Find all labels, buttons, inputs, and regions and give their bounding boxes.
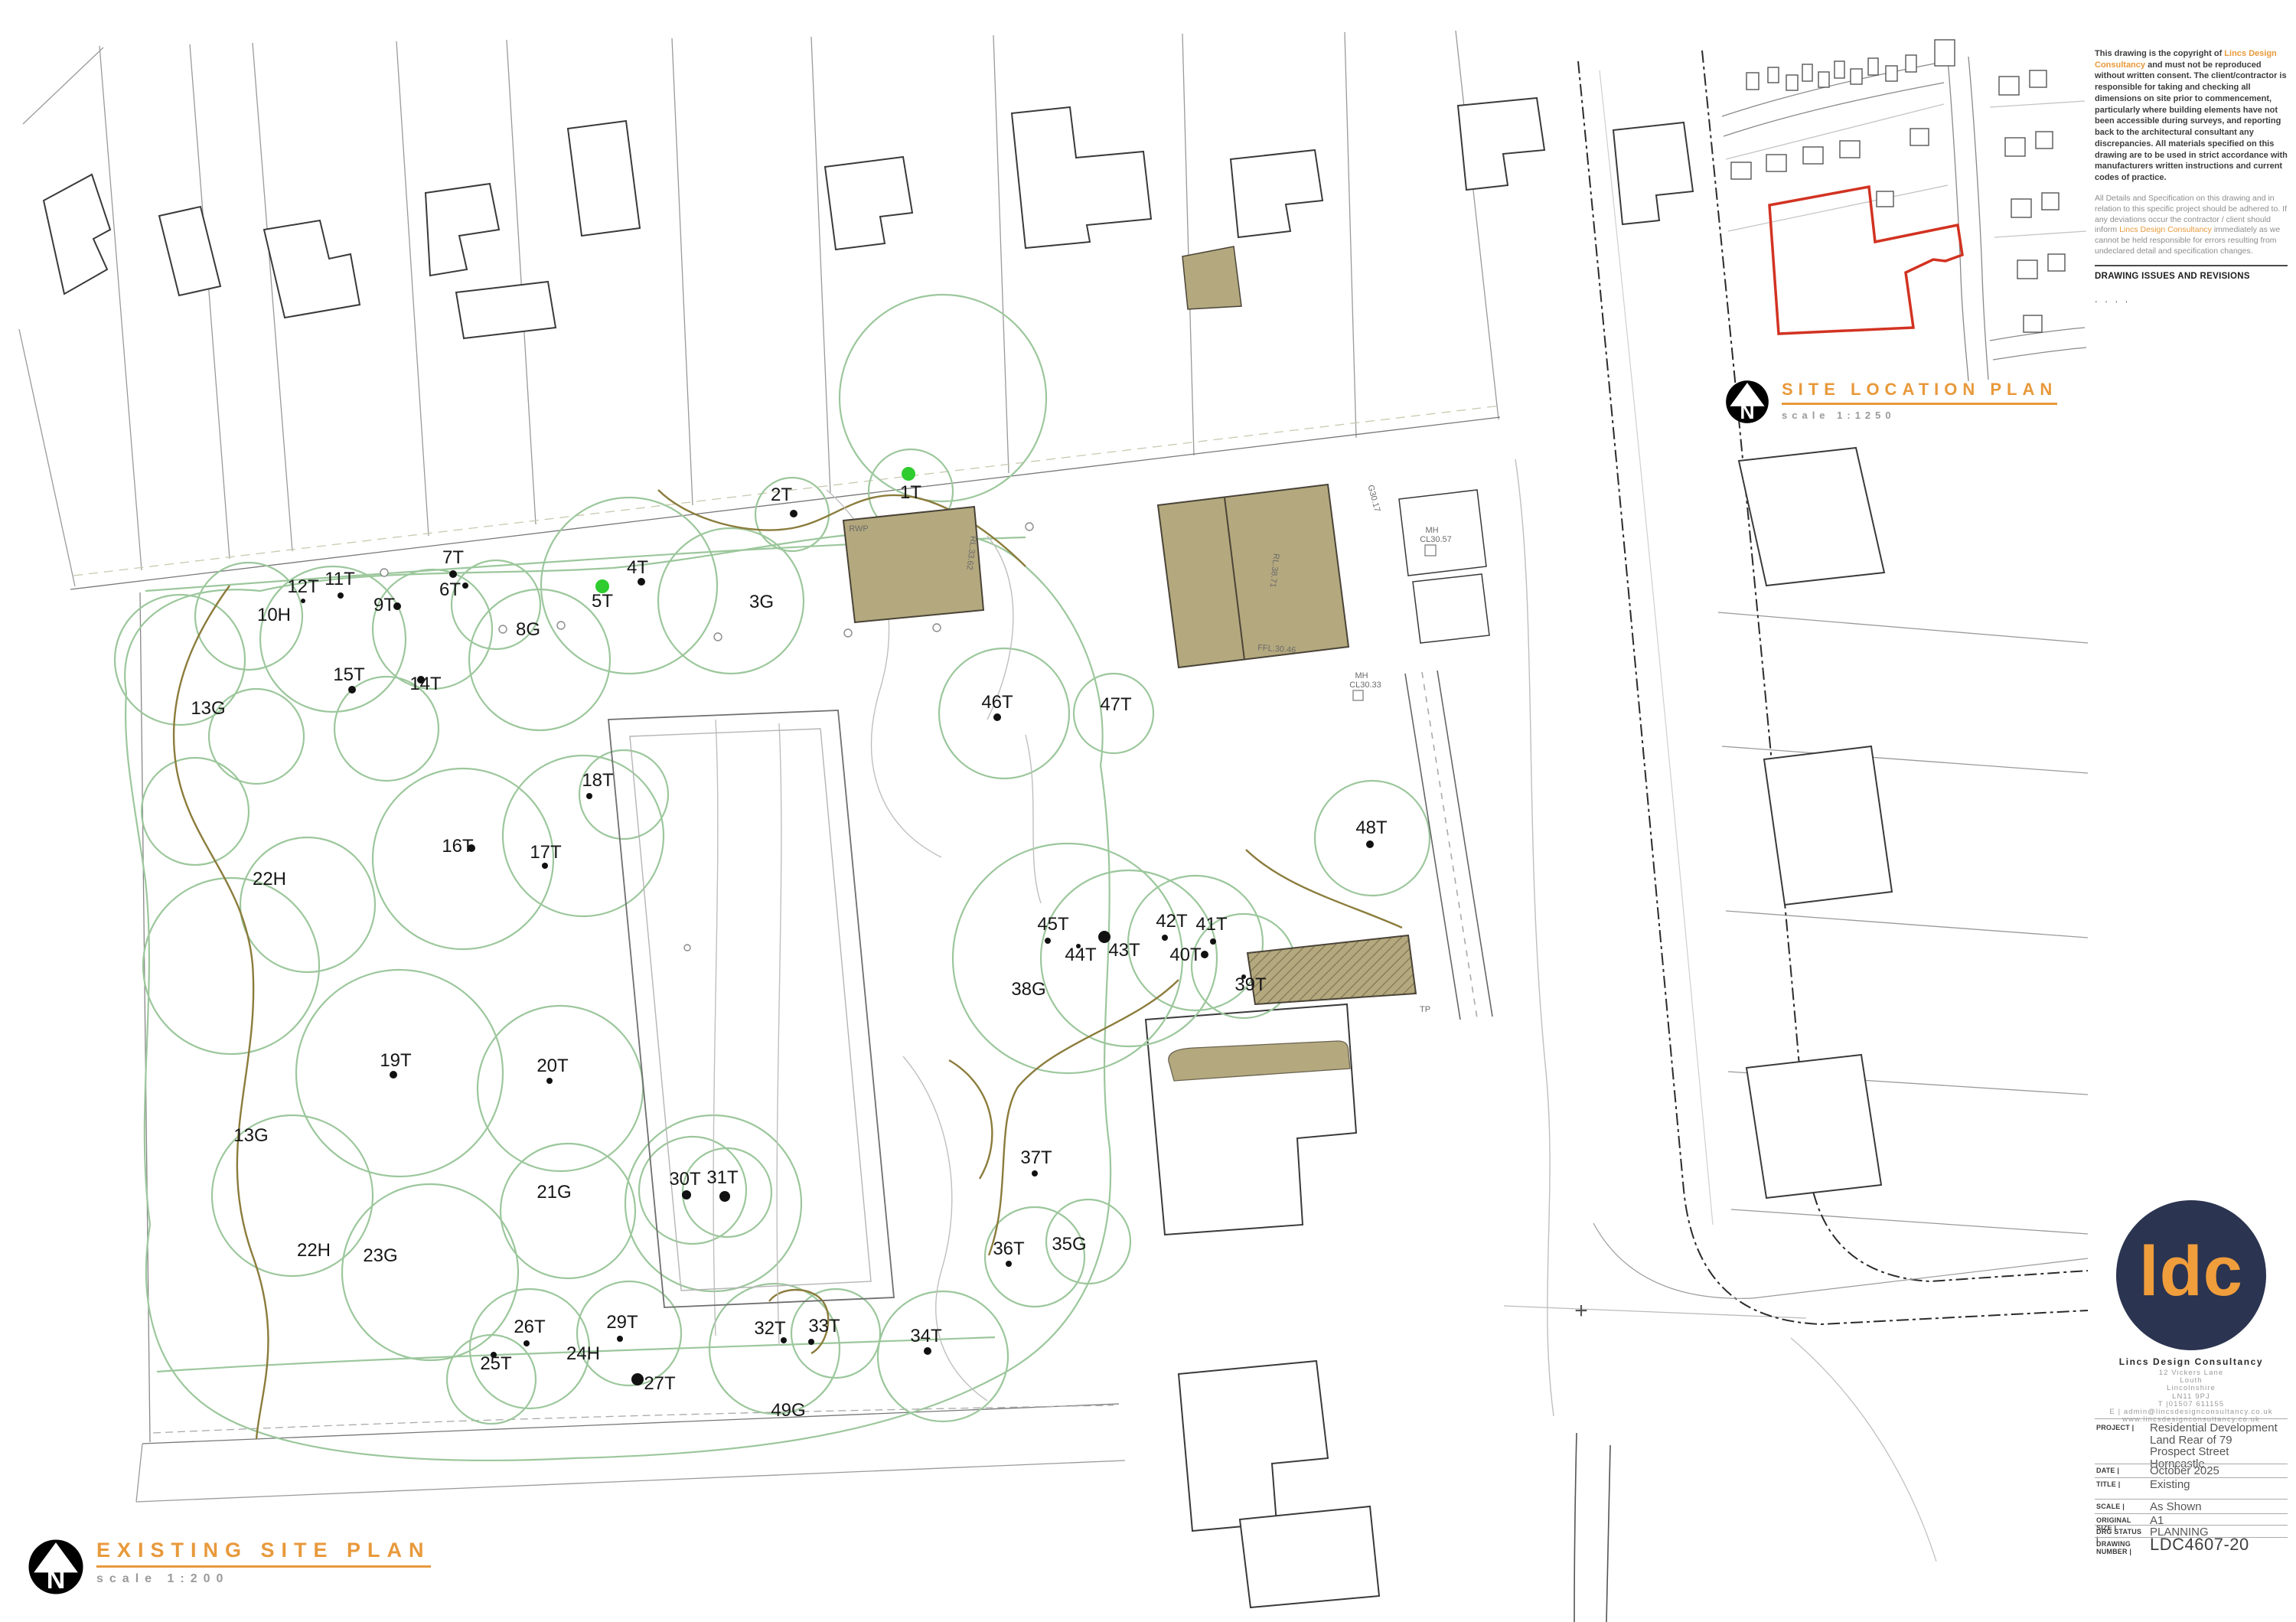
ldc-logo-text: ldc (2139, 1236, 2243, 1307)
brand-name: Lincs Design Consultancy (2119, 225, 2212, 234)
tree-label-4T: 4T (627, 557, 648, 578)
drawing-number-value: LDC4607-20 (2150, 1539, 2288, 1551)
tree-label-26T: 26T (514, 1317, 546, 1337)
divider (2095, 1513, 2288, 1514)
tree-label-23G: 23G (363, 1245, 397, 1266)
tree-dot-4T (638, 578, 645, 586)
field-label: TITLE | (2096, 1480, 2145, 1488)
tree-label-22H: 22H (297, 1240, 331, 1261)
date-value: October 2025 (2150, 1465, 2288, 1477)
tree-label-17T: 17T (530, 842, 562, 863)
divider (2095, 1499, 2288, 1500)
tree-label-15T: 15T (333, 664, 365, 685)
tree-label-7T: 7T (442, 547, 464, 568)
north-arrow-icon: N (1725, 380, 1769, 424)
tree-label-33T: 33T (808, 1316, 840, 1336)
tree-dot-11T (338, 592, 344, 599)
tree-label-20T: 20T (536, 1056, 569, 1076)
annotation: TP (1420, 1005, 1430, 1014)
annotation: RWP (849, 524, 868, 534)
title-block: This drawing is the copyright of Lincs D… (2095, 0, 2288, 1622)
inset-plan-scale: scale 1:1250 (1782, 410, 2057, 421)
project-line: Prospect Street (2150, 1446, 2288, 1458)
tree-dot-17T (542, 863, 548, 869)
tree-label-38G: 38G (1011, 979, 1045, 1000)
scale-value: As Shown (2150, 1501, 2288, 1513)
revisions-entries: . . . . (2095, 293, 2288, 305)
tree-label-22H: 22H (253, 869, 286, 889)
existing-site-plan-title: N EXISTING SITE PLAN scale 1:200 (28, 1539, 431, 1595)
tree-dot-36T (1006, 1261, 1012, 1267)
site-location-plan-title: N SITE LOCATION PLAN scale 1:1250 (1725, 380, 2057, 424)
tree-label-11T: 11T (325, 569, 355, 589)
tree-dot-41T (1210, 938, 1216, 945)
tree-label-42T: 42T (1156, 911, 1188, 932)
tree-label-36T: 36T (993, 1239, 1025, 1259)
tree-dot-29T (617, 1336, 623, 1342)
tree-label-5T: 5T (592, 591, 613, 612)
annotation: MH (1425, 526, 1438, 535)
svg-text:N: N (1740, 400, 1754, 423)
north-arrow-icon: N (28, 1539, 84, 1595)
tree-label-48T: 48T (1355, 818, 1388, 838)
annotation: + (1574, 1298, 1588, 1323)
site-boundary-red (1769, 187, 1962, 334)
tree-dot-19T (390, 1071, 397, 1079)
field-label: DRAWING NUMBER | (2096, 1540, 2145, 1555)
tree-label-1T: 1T (900, 482, 921, 503)
divider (2095, 1418, 2288, 1419)
title-value: Existing (2150, 1479, 2288, 1491)
divider (2095, 265, 2288, 266)
tree-label-8G: 8G (516, 619, 540, 640)
tree-dot-30T (682, 1190, 691, 1199)
tree-label-43T: 43T (1108, 940, 1140, 961)
company-name: Lincs Design Consultancy (2095, 1356, 2288, 1367)
divider (2095, 1477, 2288, 1478)
tree-label-3G: 3G (749, 592, 774, 612)
annotation: MH (1355, 671, 1368, 680)
tree-label-13G: 13G (233, 1125, 268, 1146)
tree-label-40T: 40T (1169, 945, 1202, 965)
neighbour-buildings (44, 98, 1892, 1607)
tree-dot-7T (449, 570, 457, 578)
tree-label-24H: 24H (566, 1343, 600, 1364)
tree-dot-1T (902, 467, 915, 481)
tree-dot-12T (301, 599, 305, 603)
project-line: Residential Development (2150, 1422, 2288, 1434)
tree-dot-6T (462, 583, 468, 589)
tree-label-13G: 13G (191, 698, 225, 719)
tree-label-21G: 21G (536, 1182, 571, 1203)
tree-label-16T: 16T (442, 836, 474, 857)
tree-label-46T: 46T (981, 692, 1013, 713)
field-label: DATE | (2096, 1467, 2145, 1474)
tree-label-29T: 29T (606, 1312, 638, 1333)
tree-dot-46T (993, 713, 1001, 721)
tree-label-25T: 25T (480, 1353, 512, 1374)
tree-dot-42T (1162, 935, 1168, 941)
company-details: Lincs Design Consultancy 12 Vickers Lane… (2095, 1356, 2288, 1424)
main-plan-title-label: EXISTING SITE PLAN (96, 1539, 431, 1568)
tree-label-34T: 34T (910, 1326, 942, 1346)
svg-text:N: N (47, 1565, 66, 1594)
annotation: CL30.33 (1349, 680, 1381, 690)
tree-label-31T: 31T (706, 1167, 739, 1188)
tree-label-49G: 49G (771, 1400, 805, 1421)
field-drawing-number: DRAWING NUMBER | LDC4607-20 (2095, 1539, 2288, 1551)
inset-plan-title-label: SITE LOCATION PLAN (1782, 380, 2057, 405)
tree-dot-27T (631, 1373, 644, 1385)
tree-label-45T: 45T (1037, 914, 1069, 935)
tree-label-9T: 9T (373, 595, 395, 615)
tree-dot-45T (1045, 938, 1051, 944)
tree-dot-48T (1366, 840, 1374, 848)
tree-dot-26T (523, 1340, 530, 1346)
tree-dot-31T (719, 1191, 730, 1202)
field-label: PROJECT | (2096, 1424, 2145, 1431)
tree-label-30T: 30T (669, 1169, 701, 1190)
tree-label-47T: 47T (1100, 694, 1132, 715)
tree-label-10H: 10H (257, 605, 291, 625)
tree-label-6T: 6T (439, 579, 461, 600)
field-title: TITLE | Existing (2095, 1479, 2288, 1491)
tree-dot-34T (924, 1347, 931, 1355)
tree-label-18T: 18T (582, 770, 614, 791)
drawing-sheet: MHCL30.57MHCL30.33RWPRL.33.62RL.38.71FFL… (0, 0, 2296, 1622)
tree-label-2T: 2T (771, 485, 792, 505)
tree-label-39T: 39T (1234, 974, 1267, 995)
field-date: DATE | October 2025 (2095, 1465, 2288, 1477)
annotation: CL30.57 (1420, 535, 1452, 544)
annotation: G30.17 (1365, 484, 1381, 513)
tree-label-44T: 44T (1065, 945, 1097, 965)
revisions-heading: DRAWING ISSUES AND REVISIONS (2095, 272, 2288, 281)
field-project: PROJECT | Residential Development Land R… (2095, 1422, 2288, 1470)
tree-dot-40T (1201, 951, 1208, 958)
tree-dot-15T (348, 686, 356, 694)
tree-dot-2T (790, 510, 797, 517)
tree-dot-37T (1032, 1170, 1038, 1177)
tree-label-37T: 37T (1020, 1147, 1052, 1168)
field-scale: SCALE | As Shown (2095, 1501, 2288, 1513)
central-enclosure (608, 710, 894, 1307)
tree-label-12T: 12T (287, 576, 319, 597)
tree-canopies (115, 295, 1430, 1460)
field-label: SCALE | (2096, 1503, 2145, 1510)
site-plan-drawing: MHCL30.57MHCL30.33RWPRL.33.62RL.38.71FFL… (0, 0, 2296, 1622)
tree-label-35G: 35G (1052, 1234, 1086, 1255)
tree-label-27T: 27T (644, 1373, 676, 1394)
tree-label-19T: 19T (380, 1050, 412, 1071)
tree-label-41T: 41T (1195, 914, 1228, 935)
main-plan-scale: scale 1:200 (96, 1572, 431, 1586)
location-plan-inset (1722, 40, 2086, 381)
tree-label-32T: 32T (754, 1318, 786, 1339)
specification-note: All Details and Specification on this dr… (2095, 194, 2288, 257)
project-line: Land Rear of 79 (2150, 1434, 2288, 1447)
tree-label-14T: 14T (409, 674, 442, 694)
copyright-note: This drawing is the copyright of Lincs D… (2095, 48, 2288, 184)
tree-dot-20T (546, 1078, 553, 1084)
driveway (1405, 671, 1492, 1020)
ldc-logo: ldc (2116, 1200, 2266, 1350)
tree-dot-18T (586, 793, 592, 799)
tree-dot-33T (808, 1339, 814, 1345)
